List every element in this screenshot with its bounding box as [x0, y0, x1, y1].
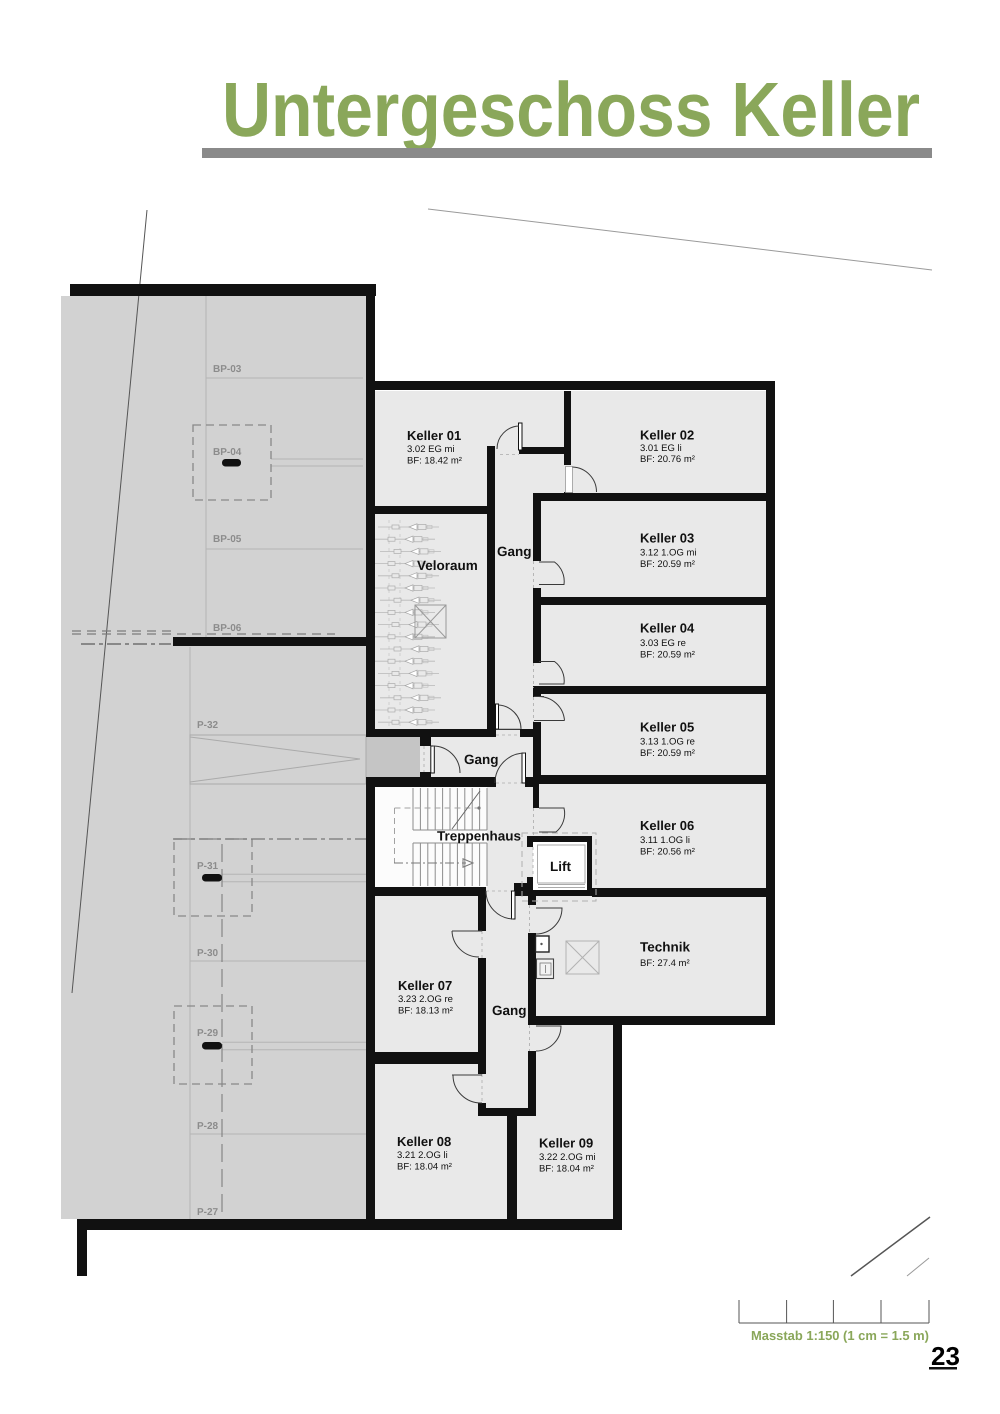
- svg-text:3.11 1.OG li: 3.11 1.OG li: [640, 835, 690, 846]
- svg-text:3.13 1.OG re: 3.13 1.OG re: [640, 737, 695, 748]
- svg-text:BP-06: BP-06: [213, 623, 242, 634]
- svg-text:Keller 01: Keller 01: [407, 428, 461, 443]
- svg-text:P-27: P-27: [197, 1207, 219, 1218]
- svg-text:BF: 20.76 m²: BF: 20.76 m²: [640, 454, 695, 465]
- svg-text:BF: 20.59 m²: BF: 20.59 m²: [640, 650, 695, 661]
- svg-text:3.23 2.OG re: 3.23 2.OG re: [398, 994, 453, 1005]
- svg-text:Veloraum: Veloraum: [417, 558, 478, 573]
- svg-text:Gang: Gang: [464, 752, 499, 767]
- svg-text:BP-05: BP-05: [213, 534, 242, 545]
- svg-text:Keller 06: Keller 06: [640, 818, 694, 833]
- svg-text:Lift: Lift: [550, 859, 571, 874]
- svg-text:BF: 20.59 m²: BF: 20.59 m²: [640, 748, 695, 759]
- svg-text:BP-04: BP-04: [213, 447, 242, 458]
- svg-text:Untergeschoss Keller: Untergeschoss Keller: [222, 67, 920, 153]
- svg-text:P-29: P-29: [197, 1028, 219, 1039]
- svg-text:3.03 EG re: 3.03 EG re: [640, 638, 686, 649]
- svg-text:BP-03: BP-03: [213, 364, 242, 375]
- svg-text:3.21 2.OG li: 3.21 2.OG li: [397, 1150, 448, 1161]
- svg-text:Keller 04: Keller 04: [640, 621, 695, 636]
- svg-text:Gang: Gang: [497, 544, 532, 559]
- svg-text:BF: 20.56 m²: BF: 20.56 m²: [640, 846, 695, 857]
- svg-text:BF: 18.13 m²: BF: 18.13 m²: [398, 1005, 453, 1016]
- svg-text:Keller 05: Keller 05: [640, 720, 694, 735]
- svg-text:BF: 18.42 m²: BF: 18.42 m²: [407, 456, 462, 467]
- svg-text:Masstab 1:150 (1 cm = 1.5 m): Masstab 1:150 (1 cm = 1.5 m): [751, 1328, 929, 1343]
- svg-text:P-28: P-28: [197, 1121, 219, 1132]
- svg-text:Keller 03: Keller 03: [640, 531, 694, 546]
- svg-text:Keller 08: Keller 08: [397, 1134, 451, 1149]
- svg-text:BF: 18.04 m²: BF: 18.04 m²: [397, 1162, 452, 1173]
- svg-text:P-32: P-32: [197, 720, 219, 731]
- svg-text:3.01 EG li: 3.01 EG li: [640, 443, 682, 454]
- svg-text:Keller 07: Keller 07: [398, 978, 452, 993]
- svg-text:P-30: P-30: [197, 948, 219, 959]
- svg-text:Keller 09: Keller 09: [539, 1136, 593, 1151]
- svg-text:P-31: P-31: [197, 861, 219, 872]
- svg-text:3.02 EG mi: 3.02 EG mi: [407, 444, 455, 455]
- svg-text:BF: 18.04 m²: BF: 18.04 m²: [539, 1164, 594, 1175]
- svg-text:Technik: Technik: [640, 940, 691, 955]
- svg-text:BF: 20.59 m²: BF: 20.59 m²: [640, 559, 695, 570]
- svg-text:3.12 1.OG mi: 3.12 1.OG mi: [640, 548, 697, 559]
- svg-text:Gang: Gang: [492, 1003, 527, 1018]
- svg-text:3.22 2.OG mi: 3.22 2.OG mi: [539, 1152, 596, 1163]
- svg-text:Treppenhaus: Treppenhaus: [437, 829, 521, 844]
- svg-text:23: 23: [931, 1341, 960, 1371]
- svg-text:BF: 27.4 m²: BF: 27.4 m²: [640, 958, 690, 969]
- svg-text:Keller 02: Keller 02: [640, 427, 694, 442]
